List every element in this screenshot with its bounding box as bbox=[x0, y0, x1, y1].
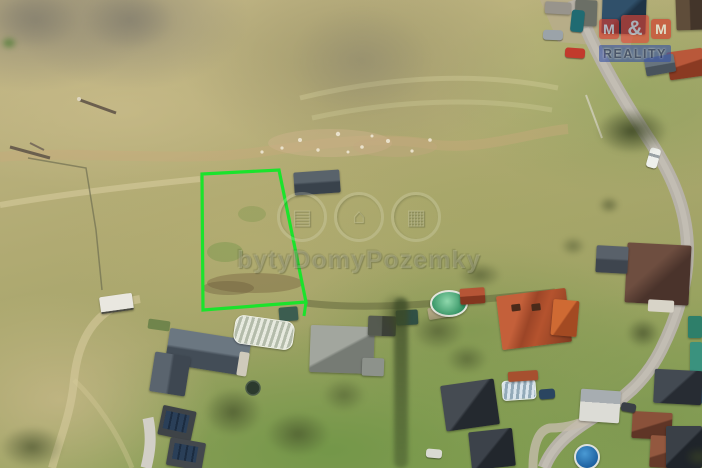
logo-tiles: M & M bbox=[599, 15, 671, 43]
logo-tile-m1: M bbox=[599, 19, 619, 39]
parcel-boundary-stub bbox=[304, 302, 306, 316]
agency-logo: M & M REALITY bbox=[599, 15, 671, 62]
parcel-overlay-layer bbox=[0, 0, 702, 468]
logo-banner: REALITY bbox=[599, 45, 671, 62]
parcel-boundary bbox=[202, 170, 306, 310]
logo-tile-amp: & bbox=[621, 15, 649, 43]
aerial-photo: ▤ ⌂ ▦ bytyDomyPozemky M & M REALITY bbox=[0, 0, 702, 468]
logo-tile-m2: M bbox=[651, 19, 671, 39]
